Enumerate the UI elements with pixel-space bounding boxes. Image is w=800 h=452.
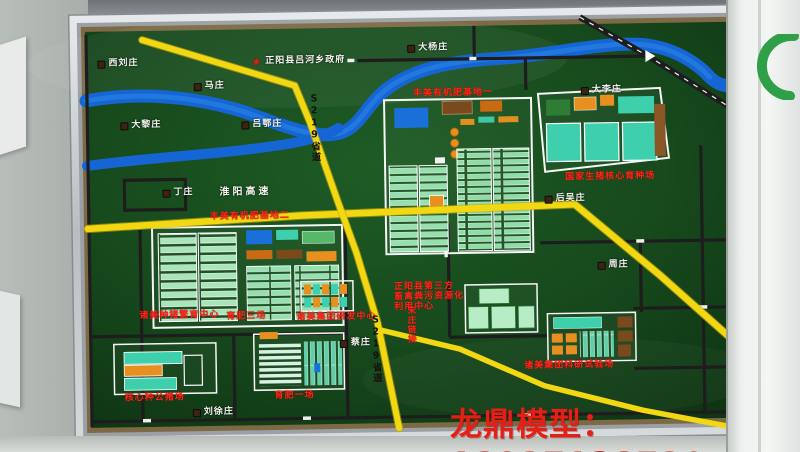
facility-fertilizer-base-1 [384,98,533,254]
facility-boar-farm [114,343,217,395]
facility-manure-center [465,284,538,333]
watermark-text: 龙鼎模型：18937128730 [450,399,800,452]
map-board-photo: ★ 正阳县吕河乡政府 西刘庄 马庄 大黎庄 吕鄂庄 大杨庄 大李庄 丁庄 后吴庄… [0,0,800,452]
facility-fattening-farm [254,331,345,390]
facility-rd-center [301,281,353,312]
green-logo-icon [746,34,800,100]
facility-fertilizer-base-2 [152,225,344,328]
map-board: ★ 正阳县吕河乡政府 西刘庄 马庄 大黎庄 吕鄂庄 大杨庄 大李庄 丁庄 后吴庄… [0,0,800,452]
facility-breeding-farm [538,88,669,172]
facility-research-site [547,312,636,361]
wall-pillar [726,0,800,452]
map-artwork [0,0,800,452]
